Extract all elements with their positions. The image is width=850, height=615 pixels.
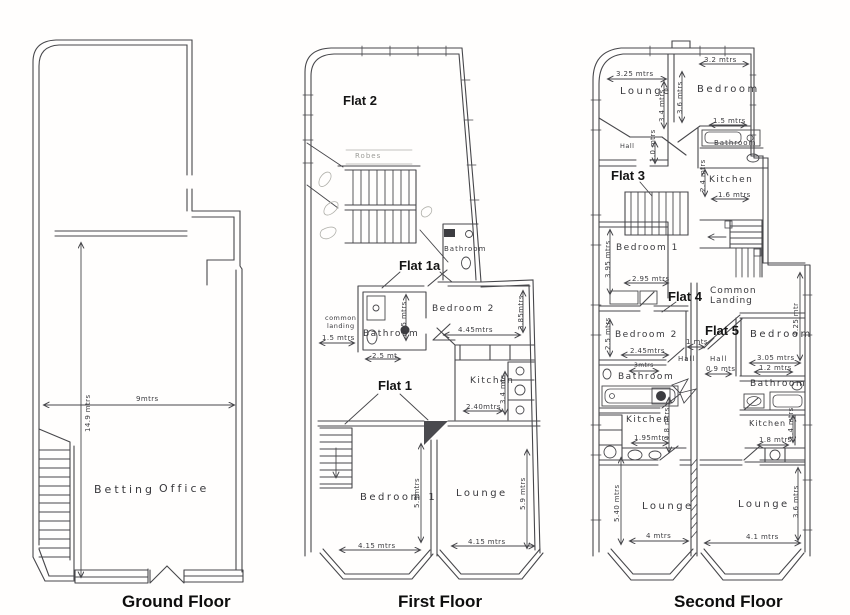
dim-label-bedroom2-height: 3.85mtrs xyxy=(517,295,525,330)
dim-label-bedroom1-height-second: 3.95 mtrs xyxy=(604,241,612,279)
dim-label-bedroom1-width-second: 2.95 mtrs xyxy=(632,275,670,283)
dim-label-kitchen3-width: 1.6 mtrs xyxy=(718,191,751,199)
dim-label-kitchen-height-first: 3.4 mts xyxy=(499,375,507,404)
room-label-kitchen-flat5: Kitchen xyxy=(749,419,786,428)
dim-label-bathroom5-width: 1.2 mtrs xyxy=(759,364,792,372)
dim-label-bedroom2-width: 4.45mtrs xyxy=(458,326,493,334)
room-label-bathroom-flat1a: Bathroom xyxy=(363,329,419,339)
dim-label-lounge3-height: 3.4 mtrs xyxy=(658,89,666,122)
dim-label-bath-width-first: 2.5 mt xyxy=(372,352,397,360)
dim-label-bedroom1-height: 5.9mtrs xyxy=(413,478,421,508)
dim-label-hall5-width: 0.9 mts xyxy=(706,365,735,373)
dim-label-lounge5-height: 3.6 mtrs xyxy=(792,485,800,518)
flat-label-flat-4: Flat 4 xyxy=(668,289,702,304)
room-label-kitchen-first: Kitchen xyxy=(470,376,514,386)
room-label-bedroom-2-flat4: Bedroom 2 xyxy=(615,330,678,340)
dim-label-hall3-height: 1.0 mtrs xyxy=(649,129,657,162)
dim-label-bathroom3-width: 1.5 mtrs xyxy=(713,117,746,125)
dim-label-hall-width: 1 mts xyxy=(686,338,708,346)
room-label-bedroom-1-flat4: Bedroom 1 xyxy=(616,243,679,253)
flat-label-flat-1: Flat 1 xyxy=(378,378,412,393)
flat-label-flat-5: Flat 5 xyxy=(705,323,739,338)
dim-label-bath-height-first: 2.5 mtrs xyxy=(400,301,408,334)
dim-label-bedroom3-height: 3.6 mtrs xyxy=(676,81,684,114)
room-label-lounge-first: Lounge xyxy=(456,488,508,499)
room-label-common-line2: Landing xyxy=(710,296,753,306)
dim-label-lounge5-width: 4.1 mtrs xyxy=(746,533,779,541)
dim-label-lounge4-width: 4 mtrs xyxy=(646,532,671,540)
room-label-bathroom-flat4: Bathroom xyxy=(618,372,674,382)
dim-label-lounge3-width: 3.25 mtrs xyxy=(616,70,654,78)
room-label-hall-flat4: Hall xyxy=(678,355,695,363)
room-label-betting: Betting xyxy=(94,483,155,496)
dim-label-bedroom2-width-second: 2.45mtrs xyxy=(630,347,665,355)
room-label-office: Office xyxy=(159,482,209,495)
room-label-bedroom-2-first: Bedroom 2 xyxy=(432,304,495,314)
dim-label-kitchen5-height: 1.4 mtrs xyxy=(787,407,795,440)
dim-label-kitchen-width-first: 2.40mtrs xyxy=(466,403,501,411)
dim-label-kitchen3-height: 2.4 mtrs xyxy=(699,159,707,192)
dim-label-lounge-height-first: 5.9 mtrs xyxy=(519,477,527,510)
flat-label-flat-2: Flat 2 xyxy=(343,93,377,108)
dim-label-bedroom5-height: 4.25 mtr xyxy=(792,303,800,336)
room-label-bathroom-flat3: Bathroom xyxy=(714,139,756,147)
room-label-kitchen-flat3: Kitchen xyxy=(709,175,753,185)
dim-label-ground-width: 9mtrs xyxy=(136,395,159,403)
dim-label-bedroom1-width: 4.15 mtrs xyxy=(358,542,396,550)
room-label-bathroom-flat1a-top: Bathroom xyxy=(444,245,486,253)
dim-label-kitchen4-height: 1.8 mtrs xyxy=(663,407,671,440)
room-label-hall-flat3: Hall xyxy=(620,142,634,150)
dim-label-bedroom3-width: 3.2 mtrs xyxy=(704,56,737,64)
room-label-lounge-flat4: Lounge xyxy=(642,501,694,512)
ground-floor-drawing xyxy=(33,40,243,583)
flat-label-flat-1a: Flat 1a xyxy=(399,258,440,273)
flat-label-flat-3: Flat 3 xyxy=(611,168,645,183)
room-label-bathroom-flat5: Bathroom xyxy=(750,379,806,389)
room-label-common-landing-line2: landing xyxy=(327,322,355,330)
floorplan-sheet: Betting Office 9mtrs 14.9 mtrs Ground Fl… xyxy=(0,0,850,615)
dim-label-bedroom5-width: 3.05 mtrs xyxy=(757,354,795,362)
room-label-bedroom-flat5: Bedroom xyxy=(750,329,813,340)
room-label-hall-flat5: Hall xyxy=(710,355,727,363)
floor-caption-ground: Ground Floor xyxy=(122,592,231,612)
floor-caption-first: First Floor xyxy=(398,592,482,612)
room-label-robes: Robes xyxy=(355,152,381,160)
dim-label-ground-depth: 14.9 mtrs xyxy=(84,395,92,433)
room-label-lounge-flat5: Lounge xyxy=(738,499,790,510)
room-label-bedroom-flat3: Bedroom xyxy=(697,84,760,95)
dim-label-lounge4-height: 5.40 mtrs xyxy=(613,485,621,523)
room-label-common-landing-line1: common xyxy=(325,314,356,322)
dim-label-bedroom2-height-second: 2.5 mtrs xyxy=(604,317,612,350)
dim-label-landing-width: 1.5 mtrs xyxy=(322,334,355,342)
room-label-bedroom-1-first: Bedroom 1 xyxy=(360,492,437,503)
dim-label-bathroom4-width: 3mtrs xyxy=(634,362,654,369)
dim-label-lounge-width-first: 4.15 mtrs xyxy=(468,538,506,546)
floor-caption-second: Second Floor xyxy=(674,592,783,612)
room-label-common-line1: Common xyxy=(710,286,757,296)
